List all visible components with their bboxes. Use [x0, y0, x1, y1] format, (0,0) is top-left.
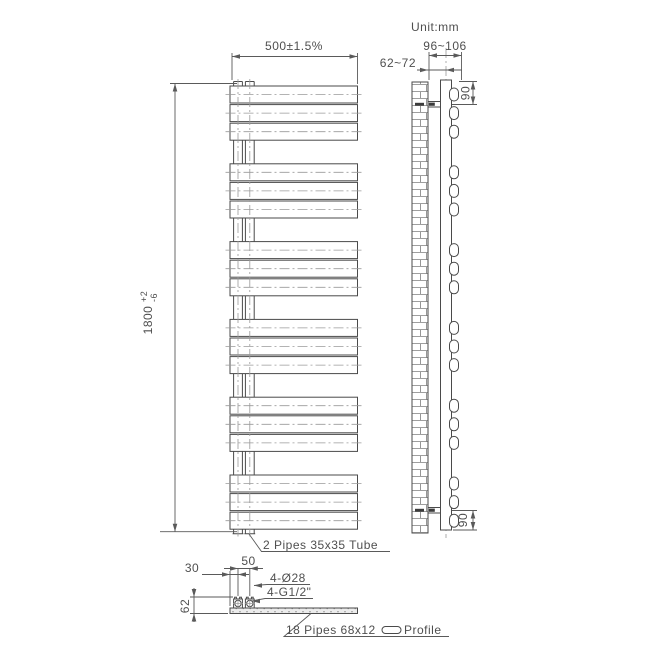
dimension-arrowhead [454, 53, 462, 58]
profile-oval-side [450, 262, 459, 275]
wall-clearance-label: 62~72 [380, 56, 416, 70]
bottom-anchor-bolt [415, 509, 424, 512]
dimension-arrowhead [429, 53, 437, 58]
pipes-note-label: 2 Pipes 35x35 Tube [263, 538, 378, 552]
holes-note-label: 4-Ø28 [270, 571, 306, 585]
side-view-vertical-tube [441, 80, 452, 530]
profile-note-prefix-label: 18 Pipes 68x12 [286, 623, 376, 637]
profile-oval-side [450, 166, 459, 179]
width-dimension-label: 500±1.5% [265, 39, 323, 53]
height-dimension-label: 1800 +2 -6 [139, 291, 159, 335]
profile-plate-section [230, 608, 358, 614]
dimension-arrowhead [471, 522, 476, 530]
thread-note-label: 4-G1/2" [267, 585, 311, 599]
top-bracket-bolt [429, 103, 435, 106]
dimension-arrowhead [230, 566, 238, 571]
drawing-canvas: Unit:mm 500±1.5% 1800 +2 -6 62~72 96~106… [0, 0, 650, 650]
dimension-arrowhead [173, 84, 178, 92]
front-view-vertical-pipes [233, 82, 256, 534]
profile-oval-side [450, 359, 459, 372]
dimension-arrowhead [232, 54, 240, 59]
profile-oval-side [450, 477, 459, 490]
front-view-bars [230, 86, 358, 529]
profile-oval-side [450, 244, 459, 257]
dimension-arrowhead [173, 524, 178, 532]
profile-oval-side [450, 107, 459, 120]
top-anchor-bolt [415, 103, 424, 106]
height-value: 1800 [141, 306, 155, 335]
dimension-arrowhead [471, 511, 476, 519]
height-tol-plus: +2 [139, 291, 149, 302]
profile-note-suffix-label: Profile [404, 623, 442, 637]
height-tol-minus: -6 [149, 293, 159, 302]
bottom-bracket-bolt [429, 509, 435, 512]
dimension-arrowhead [254, 583, 262, 588]
unit-label: Unit:mm [411, 20, 459, 34]
pipe-spacing-label: 50 [241, 554, 255, 568]
wall-section [412, 82, 428, 533]
profile-oval-side [450, 203, 459, 216]
profile-oval-side [450, 184, 459, 197]
profile-oval-side [450, 321, 459, 334]
profile-oval-side [450, 496, 459, 509]
dimension-arrowhead [420, 68, 428, 73]
profile-oval-side [450, 340, 459, 353]
dimension-arrowhead [238, 572, 246, 577]
dimension-arrowhead [222, 572, 230, 577]
profile-oval-side [450, 125, 459, 138]
profile-shape-symbol [382, 627, 401, 634]
overall-depth-label: 96~106 [423, 39, 466, 53]
dimension-arrowhead [446, 68, 454, 73]
detail-depth-label: 62 [178, 599, 192, 613]
top-bracket-offset-label: 90 [459, 86, 473, 100]
dimension-arrowhead [192, 589, 197, 597]
radiator-technical-drawing: Unit:mm 500±1.5% 1800 +2 -6 62~72 96~106… [0, 0, 650, 650]
profile-oval-side [450, 281, 459, 294]
bottom-bracket-offset-label: 90 [456, 513, 470, 527]
dimension-arrowhead [192, 614, 197, 622]
edge-offset-label: 30 [185, 561, 199, 575]
bottom-detail-view [230, 597, 358, 613]
profile-oval-side [450, 418, 459, 431]
profile-oval-side [450, 399, 459, 412]
dimension-arrowhead [350, 54, 358, 59]
profile-oval-side [450, 88, 459, 101]
profile-oval-side [450, 436, 459, 449]
